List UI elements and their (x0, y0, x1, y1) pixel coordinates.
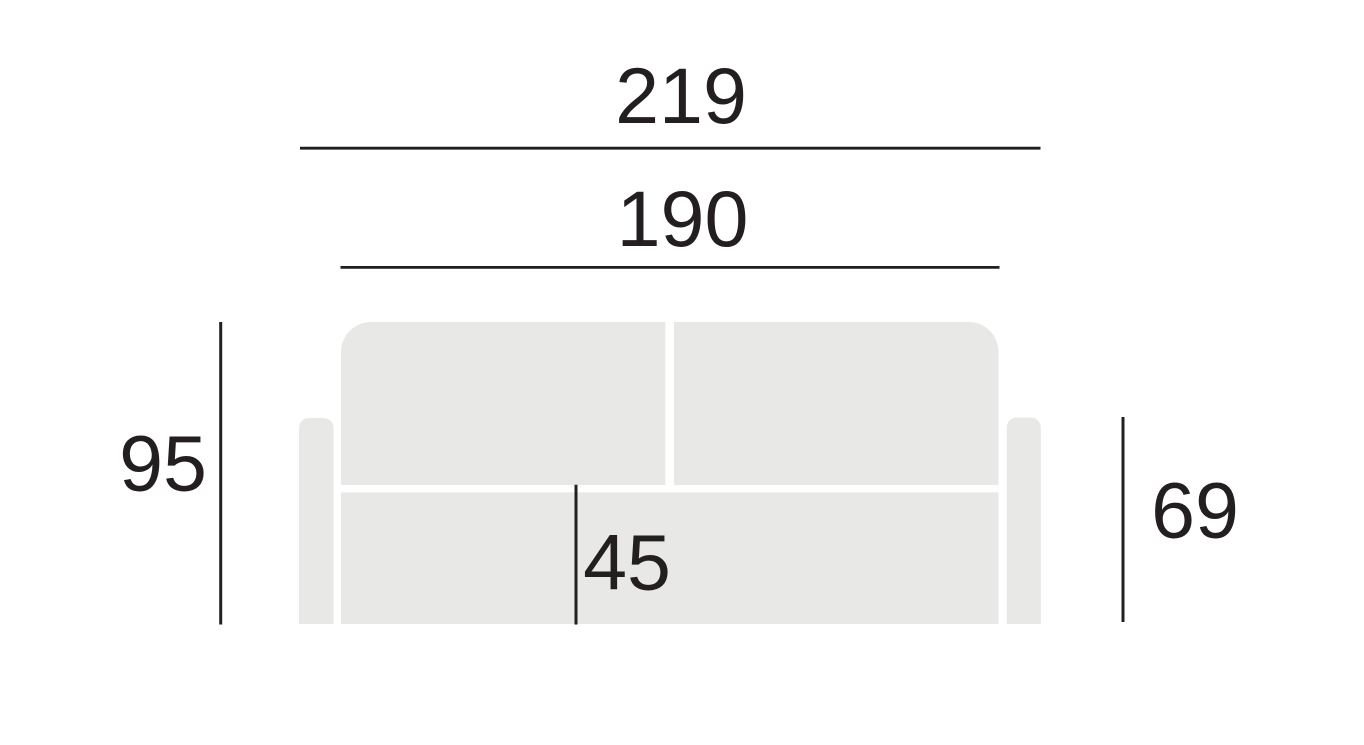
svg-text:95: 95 (119, 419, 207, 508)
svg-text:219: 219 (615, 51, 747, 140)
svg-text:69: 69 (1151, 466, 1239, 555)
svg-text:190: 190 (617, 174, 749, 263)
svg-text:45: 45 (583, 518, 671, 607)
